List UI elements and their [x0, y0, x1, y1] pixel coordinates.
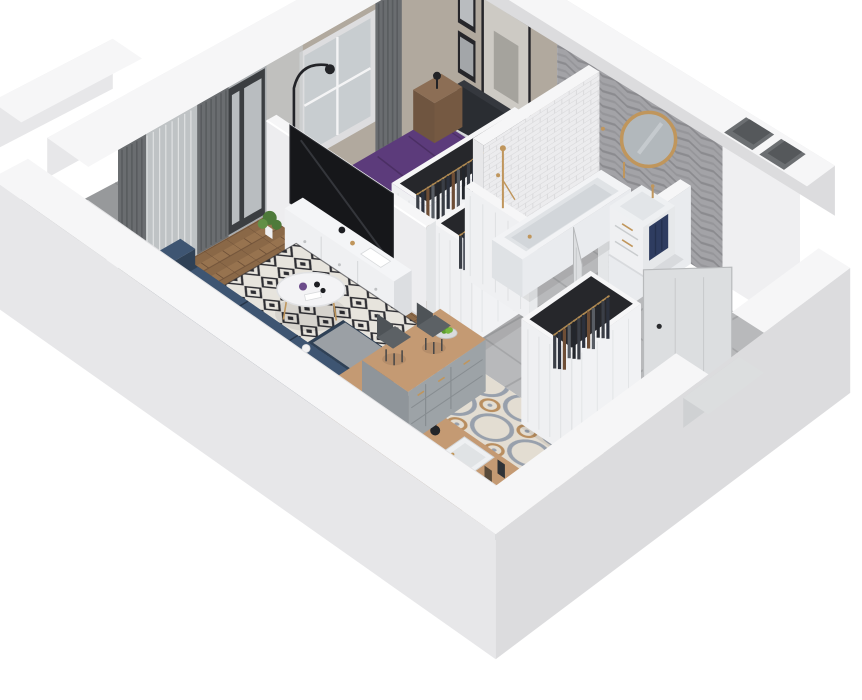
apartment-3d-floorplan [0, 0, 862, 700]
apartment-render-canvas [0, 0, 862, 700]
